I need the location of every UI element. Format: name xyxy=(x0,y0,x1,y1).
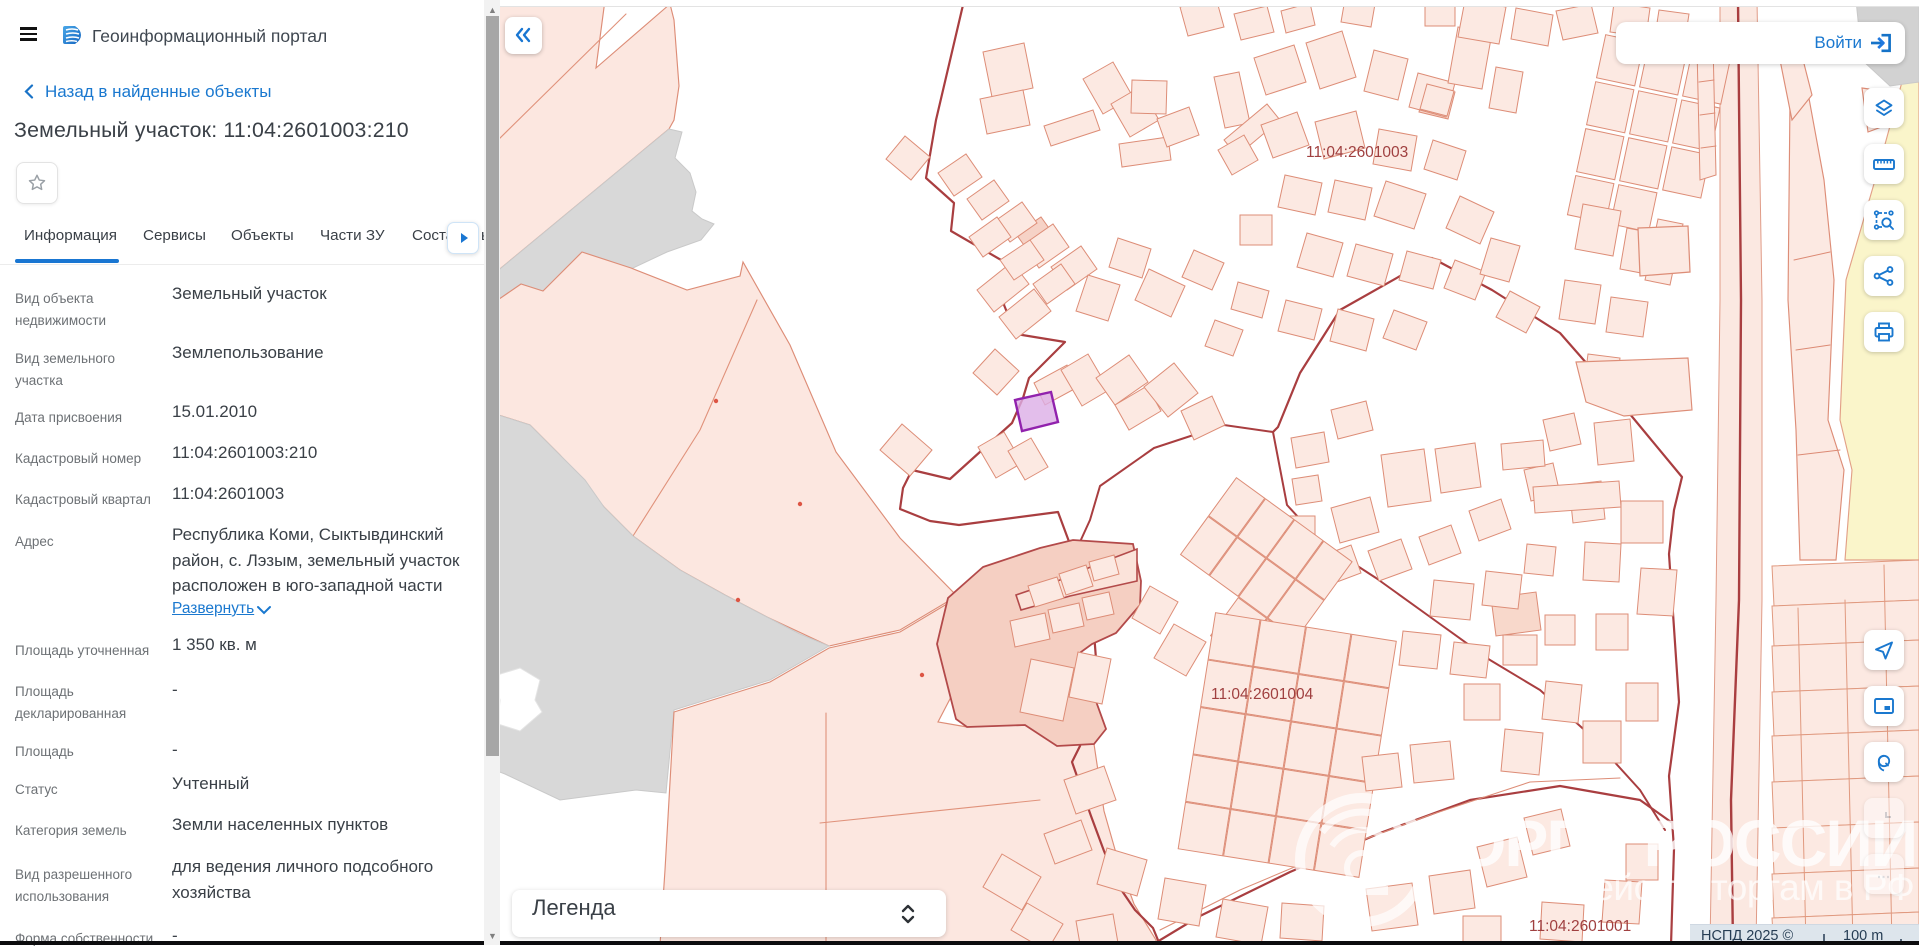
svg-text:атплейс по торгам в РФ: атплейс по торгам в РФ xyxy=(1517,867,1914,908)
svg-text:11:04:2601003: 11:04:2601003 xyxy=(1306,144,1408,161)
svg-text:11:04:2601001: 11:04:2601001 xyxy=(1529,918,1631,935)
svg-text:11:04:2601004: 11:04:2601004 xyxy=(1211,686,1314,703)
